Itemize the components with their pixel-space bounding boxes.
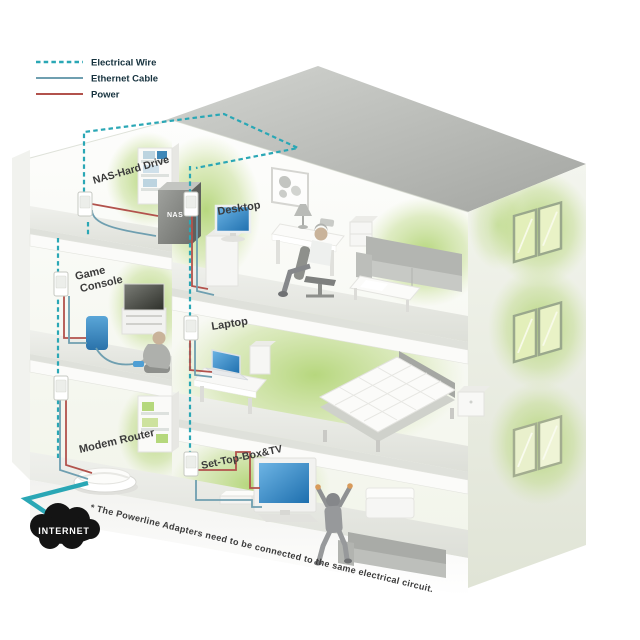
outlet-modem bbox=[54, 376, 68, 400]
internet-label: INTERNET bbox=[38, 526, 89, 536]
game-console-device bbox=[86, 316, 108, 350]
svg-text:Ethernet Cable: Ethernet Cable bbox=[91, 74, 158, 85]
legend-row-electrical: Electrical Wire bbox=[36, 58, 156, 69]
flat-tv bbox=[254, 458, 318, 522]
picture-frame bbox=[272, 168, 308, 208]
exterior-right-wall bbox=[468, 164, 592, 588]
game-controller bbox=[133, 361, 144, 367]
outlet-game bbox=[54, 272, 68, 296]
nas-badge: NAS bbox=[167, 212, 183, 219]
diagram-canvas: NAS bbox=[0, 0, 640, 640]
legend-row-ethernet: Ethernet Cable bbox=[36, 74, 158, 85]
legend: Electrical Wire Ethernet Cable Power bbox=[36, 58, 158, 101]
svg-text:Electrical Wire: Electrical Wire bbox=[91, 58, 156, 69]
legend-row-power: Power bbox=[36, 90, 120, 101]
tall-shelf bbox=[138, 391, 179, 452]
outlet-desktop bbox=[184, 192, 198, 216]
tv-on-stand bbox=[122, 284, 166, 334]
powerline-home-diagram: NAS bbox=[0, 0, 640, 640]
outlet-nas bbox=[78, 192, 92, 216]
outlet-settop bbox=[184, 452, 198, 476]
svg-text:Power: Power bbox=[91, 90, 120, 101]
left-exterior-wall bbox=[12, 150, 30, 480]
armchair bbox=[366, 488, 414, 518]
outlet-laptop bbox=[184, 316, 198, 340]
